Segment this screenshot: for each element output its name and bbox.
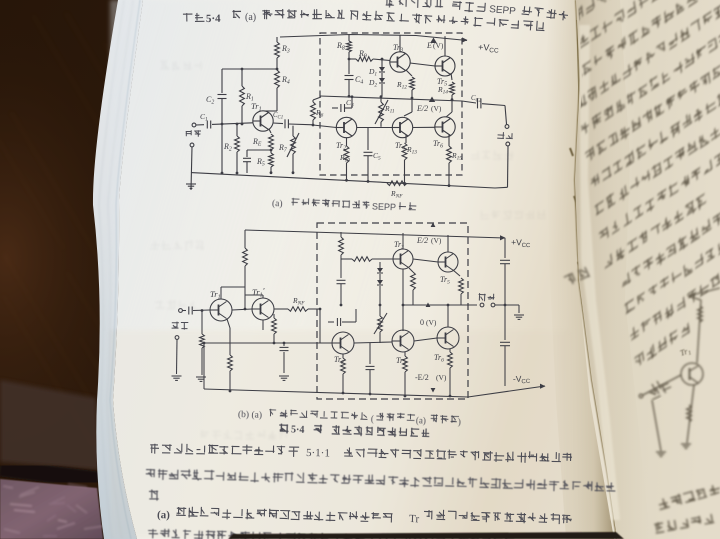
svg-text:(a): (a): [157, 509, 170, 521]
svg-text:E/2: E/2: [416, 104, 428, 113]
svg-text:5·4: 5·4: [291, 424, 305, 435]
svg-text:(a): (a): [245, 12, 256, 23]
svg-text:): ): [458, 417, 461, 427]
svg-text:(V): (V): [436, 373, 447, 382]
svg-text:Tr: Tr: [409, 513, 420, 525]
svg-text:0: 0: [420, 318, 424, 327]
svg-text:-E/2: -E/2: [415, 373, 429, 382]
svg-text:E/2: E/2: [416, 236, 428, 245]
svg-text:(V): (V): [426, 318, 437, 327]
svg-text:SEPP: SEPP: [489, 4, 517, 17]
svg-text:SEPP: SEPP: [372, 201, 396, 212]
svg-text:(V): (V): [431, 236, 442, 245]
svg-text:5·1·1: 5·1·1: [306, 447, 330, 459]
svg-text:(a): (a): [272, 198, 283, 209]
svg-text:(a): (a): [416, 415, 426, 425]
svg-text:(b) (a): (b) (a): [238, 409, 262, 421]
svg-text:(V): (V): [431, 104, 442, 113]
svg-text:(: (: [371, 414, 374, 424]
svg-text:5·4: 5·4: [206, 13, 221, 25]
